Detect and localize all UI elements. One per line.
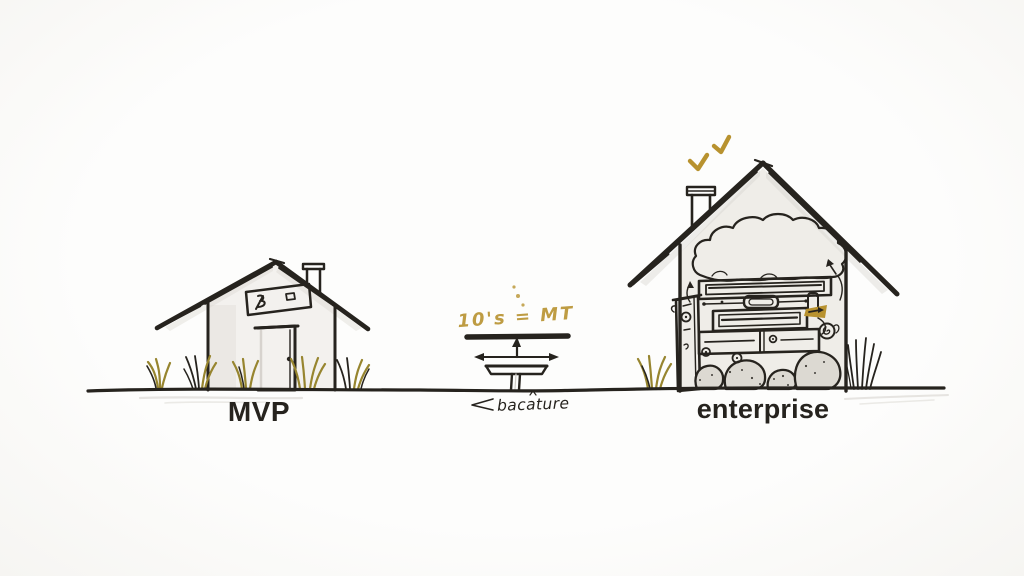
enterprise-label: enterprise [697,394,830,424]
gold-scribble-text: 10's = MT [457,303,575,332]
scale-up-arrow [512,337,521,357]
pedestal-caption-group: bacature [472,391,570,415]
mvp-house-drawing [147,259,369,390]
mvp-wall-shade [209,305,236,388]
mvp-label: MVP [228,396,290,427]
pedestal-table [486,366,547,390]
scaling-pedestal-drawing: 10's = MT bacature [457,285,575,414]
gold-sparkle-dots [512,285,524,306]
pedestal-top-bar [467,336,568,337]
pedestal-caption: bacature [497,394,570,415]
gold-check-birds [690,137,729,169]
ground-line [88,388,944,391]
caption-arrow-icon [472,399,493,410]
sketch-page: 10's = MT bacature [0,0,1024,576]
sketch-canvas: 10's = MT bacature [0,0,1024,576]
enterprise-house-drawing [630,137,897,391]
